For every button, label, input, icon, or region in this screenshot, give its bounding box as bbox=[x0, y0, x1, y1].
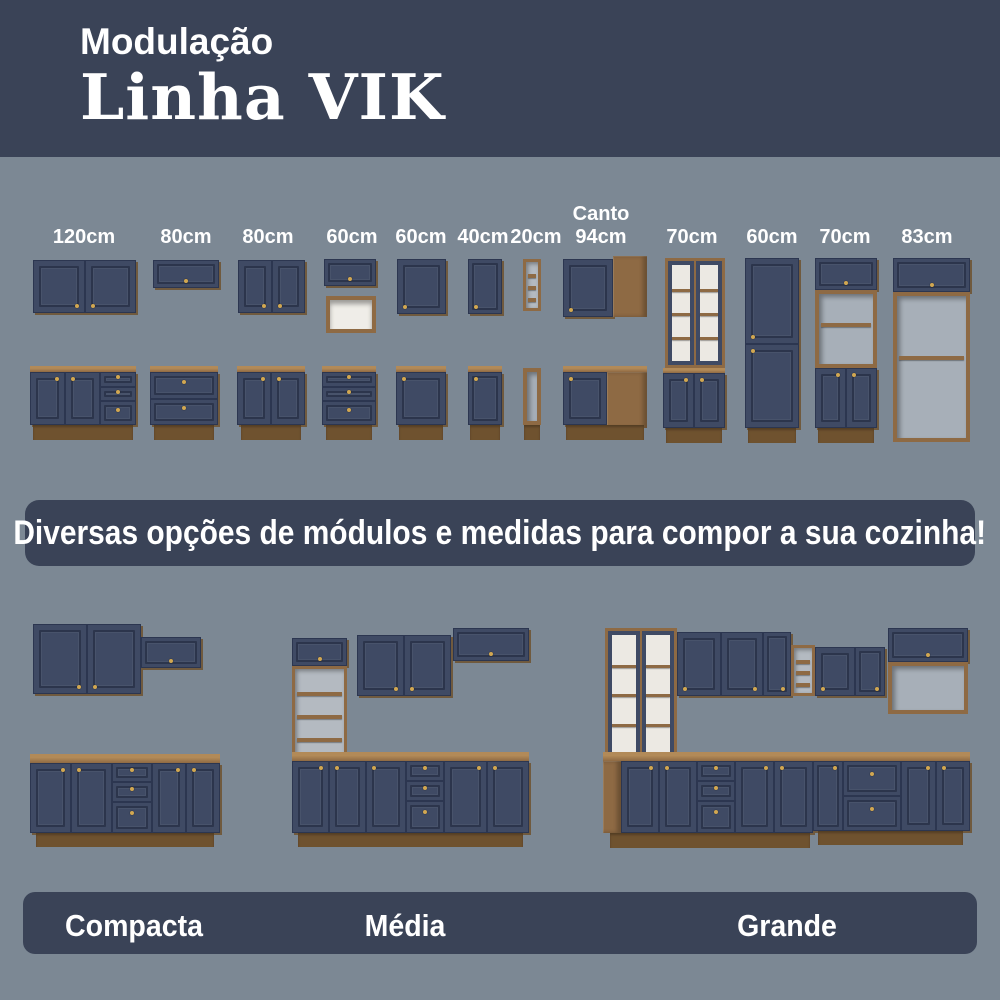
size-label-module-83cm: 83cm bbox=[901, 226, 952, 249]
page-title: Linha VIK bbox=[80, 64, 1000, 130]
header-kicker: Modulação bbox=[80, 20, 1000, 64]
size-label-module-80cm-a: 80cm bbox=[160, 226, 211, 249]
tagline-banner: Diversas opções de módulos e medidas par… bbox=[25, 500, 975, 566]
size-label-module-40cm: 40cm bbox=[457, 226, 508, 249]
tagline-text: Diversas opções de módulos e medidas par… bbox=[14, 514, 987, 553]
layout-label-grande: Grande bbox=[737, 908, 837, 944]
size-label-module-70cm-cristaleira: 70cm bbox=[666, 226, 717, 249]
size-label-module-60cm-a: 60cm bbox=[326, 226, 377, 249]
size-label-module-60cm-paneleiro: 60cm bbox=[746, 226, 797, 249]
size-label-module-canto-94cm: Canto 94cm bbox=[573, 203, 630, 249]
size-label-module-70cm-torre: 70cm bbox=[819, 226, 870, 249]
layout-label-media: Média bbox=[365, 908, 446, 944]
product-infographic: Modulação Linha VIK 120cm80cm80cm60cm60c… bbox=[0, 0, 1000, 1000]
size-label-module-20cm: 20cm bbox=[510, 226, 561, 249]
header-banner: Modulação Linha VIK bbox=[0, 0, 1000, 157]
size-label-module-80cm-b: 80cm bbox=[242, 226, 293, 249]
size-label-module-60cm-b: 60cm bbox=[395, 226, 446, 249]
size-label-module-120cm: 120cm bbox=[53, 226, 115, 249]
layout-label-compacta: Compacta bbox=[65, 908, 203, 944]
